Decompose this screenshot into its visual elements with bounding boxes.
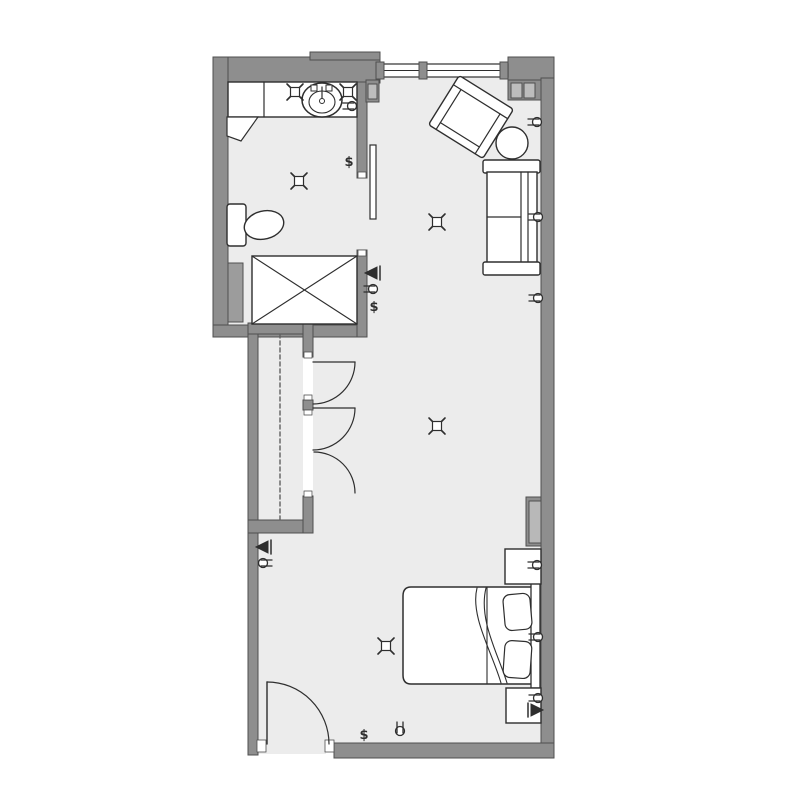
sink-faucet-right xyxy=(326,85,332,91)
window-post-mid xyxy=(419,62,427,79)
top-wall-step xyxy=(310,52,380,60)
door-jamb xyxy=(358,250,366,256)
window-post-left xyxy=(376,62,384,79)
switch-icon: $ xyxy=(369,300,378,315)
switch-icon: $ xyxy=(359,728,368,743)
pillow xyxy=(503,640,533,679)
ceiling-light-icon xyxy=(295,177,304,186)
sofa-armrest-bottom xyxy=(483,262,540,275)
closet-stub-mid xyxy=(303,400,313,410)
bathroom-sliding-door-panel xyxy=(370,145,376,219)
corridor-floor xyxy=(313,337,367,743)
door-jamb xyxy=(304,410,312,415)
right-wall-niche-inner xyxy=(529,501,541,543)
closet-stub-bottom xyxy=(303,496,313,533)
window-post-right xyxy=(500,62,508,79)
sofa-armrest-top xyxy=(483,160,540,173)
shower-niche xyxy=(228,263,243,322)
pillow xyxy=(502,593,532,631)
entry-door-gap-floor xyxy=(258,743,326,754)
bathroom-wall-niche xyxy=(368,84,377,99)
door-jamb xyxy=(304,352,312,358)
sink-drain xyxy=(320,99,325,104)
door-jamb xyxy=(358,172,366,178)
west-wall-lower xyxy=(248,323,258,755)
door-jamb xyxy=(304,395,312,400)
floor-plan-svg: $$$ xyxy=(0,0,800,800)
shower-east-wall xyxy=(357,250,367,337)
sink-faucet-left xyxy=(311,85,317,91)
left-wall-upper xyxy=(213,57,228,337)
toilet-tank xyxy=(227,204,246,246)
ceiling-light-icon xyxy=(382,642,391,651)
nightstand-bottom xyxy=(506,688,541,723)
wall-niche-top-right-1 xyxy=(511,83,522,98)
floor-plan-canvas: $$$ xyxy=(0,0,800,800)
ceiling-light-icon xyxy=(433,422,442,431)
ceiling-light-icon xyxy=(433,218,442,227)
side-table xyxy=(496,127,528,159)
bathroom-doorway-floor xyxy=(357,178,367,250)
switch-icon: $ xyxy=(344,155,353,170)
door-jamb xyxy=(257,740,266,752)
ceiling-light-icon xyxy=(344,88,353,97)
bottom-wall xyxy=(334,743,554,758)
top-wall xyxy=(213,57,380,83)
door-jamb xyxy=(304,491,312,497)
ceiling-light-icon xyxy=(291,88,300,97)
wall-niche-top-right-2 xyxy=(524,83,535,98)
right-wall xyxy=(541,78,554,758)
